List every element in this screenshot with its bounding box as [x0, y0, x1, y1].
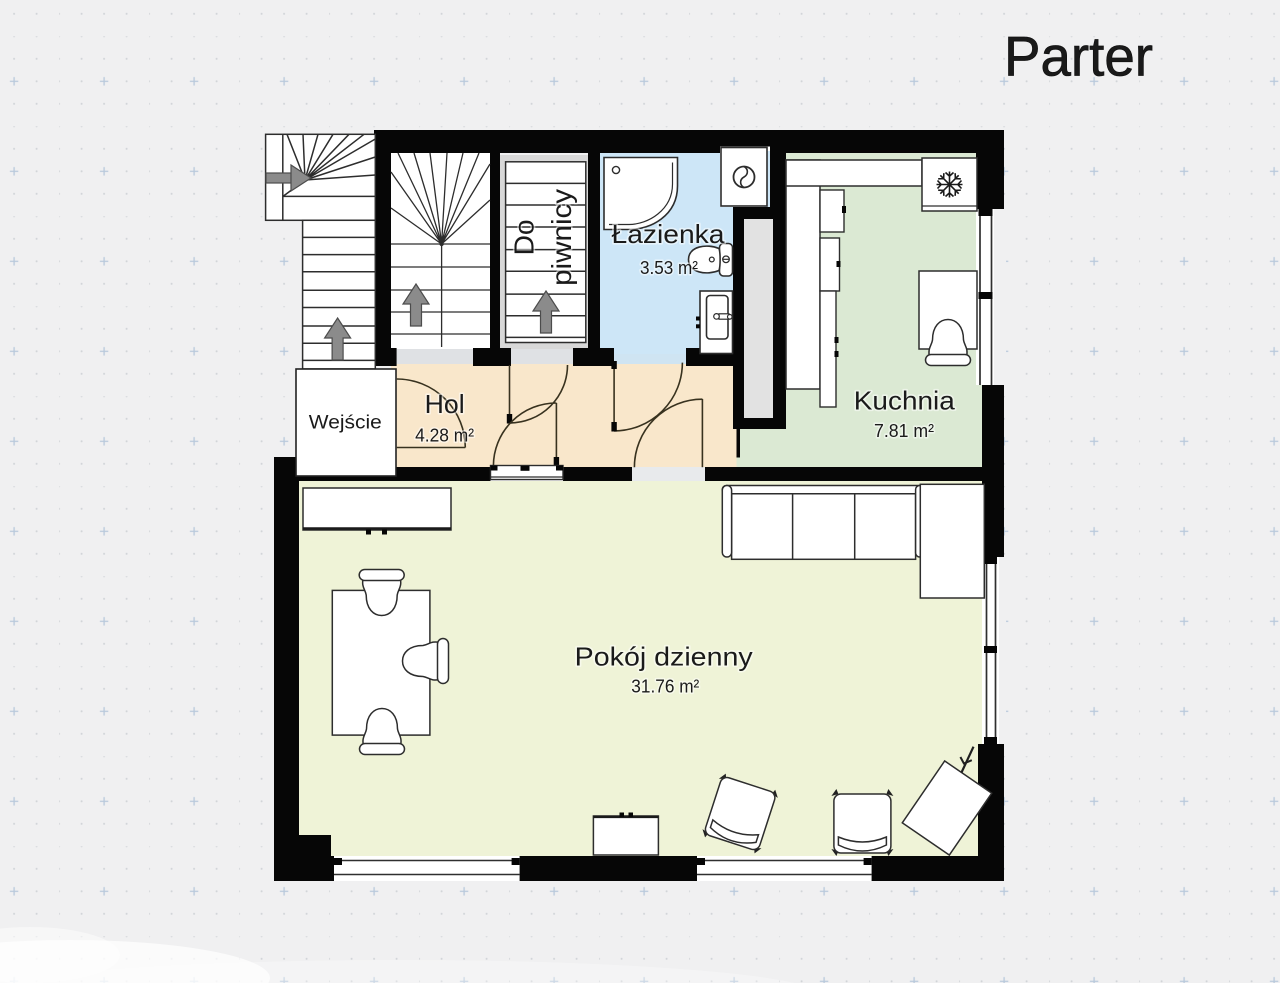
svg-text:4.28 m²: 4.28 m² — [415, 425, 474, 446]
svg-text:piwnicy: piwnicy — [546, 189, 577, 286]
svg-text:Pokój dzienny: Pokój dzienny — [575, 642, 753, 672]
svg-text:Kuchnia: Kuchnia — [854, 386, 956, 416]
svg-text:31.76 m²: 31.76 m² — [631, 676, 699, 697]
svg-text:Do: Do — [509, 219, 540, 255]
svg-text:3.53 m²: 3.53 m² — [640, 257, 698, 278]
svg-text:Hol: Hol — [425, 389, 465, 419]
svg-text:Parter: Parter — [1004, 25, 1153, 88]
svg-text:7.81 m²: 7.81 m² — [874, 420, 934, 441]
svg-text:Łazienka: Łazienka — [612, 219, 726, 249]
svg-text:Wejście: Wejście — [309, 411, 382, 433]
